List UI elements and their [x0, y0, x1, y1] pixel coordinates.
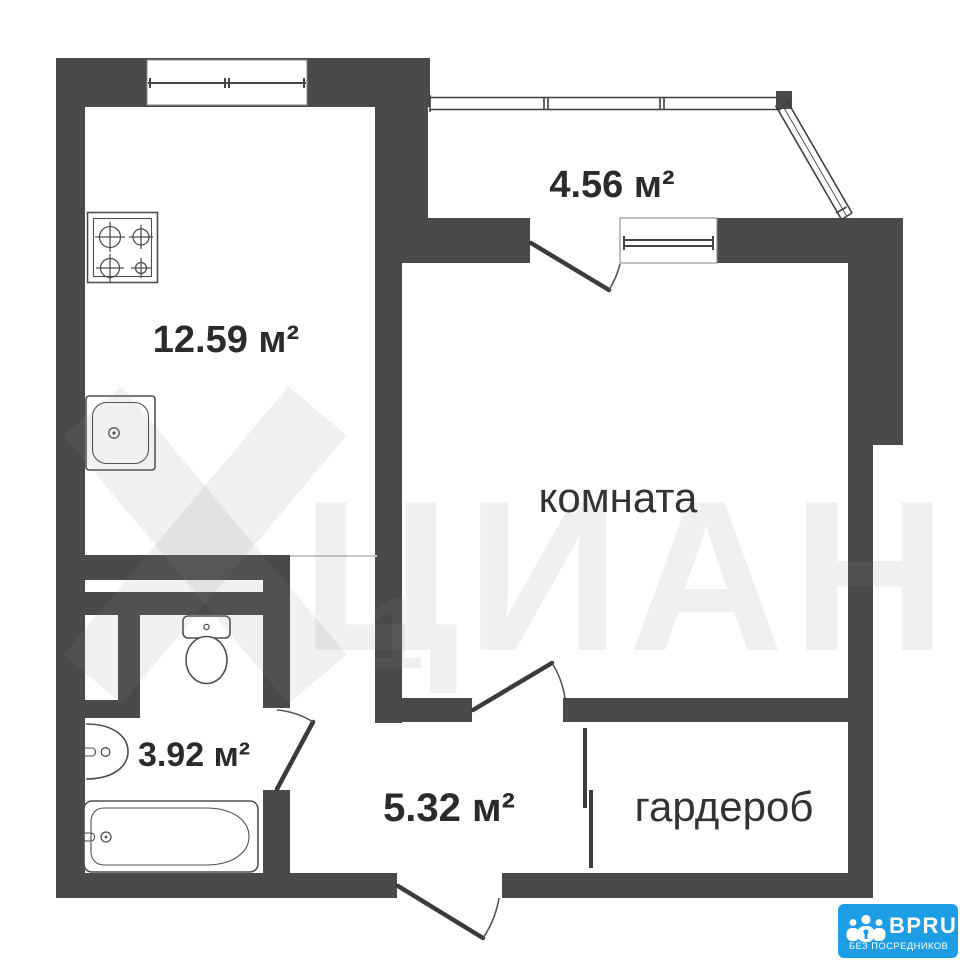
opening-bathroom-door: [263, 708, 290, 790]
room-balcony-window: [620, 218, 717, 263]
bpru-logo-title: BPRU: [889, 913, 957, 938]
wall-duct-bottom: [65, 700, 140, 718]
opening-balcony-door: [530, 218, 620, 263]
bathtub-icon: [83, 801, 259, 872]
kitchen-area-label: 12.59 м²: [153, 319, 299, 361]
wall-left: [56, 58, 85, 898]
wall-divider-upper: [375, 107, 428, 218]
floor-plan-canvas: ЦИАН 1 12.59 м² 4.56 м² комната 3.92 м² …: [0, 0, 960, 960]
living-room-label: комната: [539, 474, 698, 521]
bpru-logo-tagline: БЕЗ ПОСРЕДНИКОВ: [849, 941, 948, 951]
balcony-area-label: 4.56 м²: [549, 164, 674, 206]
floor-plan: ЦИАН 1 12.59 м² 4.56 м² комната 3.92 м² …: [0, 0, 960, 960]
washbasin-icon: [83, 724, 129, 779]
hallway-area-label: 5.32 м²: [383, 786, 515, 830]
bathroom-area-label: 3.92 м²: [138, 736, 250, 774]
stove-icon: [88, 213, 158, 283]
hall-wardrobe-partition: [583, 728, 593, 868]
kitchen-window: [147, 60, 307, 105]
toilet-icon: [183, 616, 230, 684]
wall-room-bottom: [375, 698, 848, 722]
bpru-logo: BPRU БЕЗ ПОСРЕДНИКОВ: [838, 904, 958, 958]
watermark-digit: 1: [368, 578, 424, 690]
wardrobe-label: гардероб: [635, 783, 814, 830]
wall-right-upper: [848, 263, 903, 445]
